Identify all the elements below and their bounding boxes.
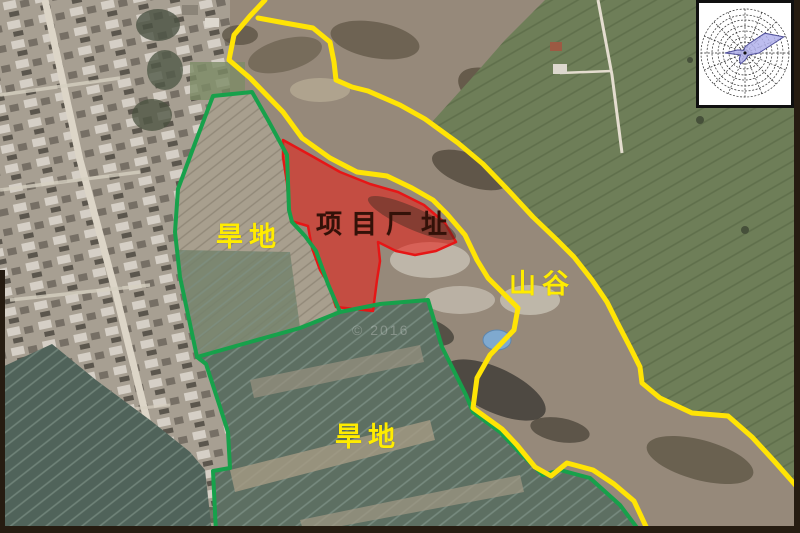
wind-rose-inset (696, 0, 794, 108)
farm-house (550, 42, 562, 51)
project-site-label: 项目厂址 (316, 204, 456, 241)
wind-rose-chart (699, 3, 791, 105)
satellite-map: 项目厂址 旱地 旱地 山谷 © 2016 (0, 0, 800, 533)
dryland-label-upper: 旱地 (216, 215, 282, 254)
wind-rose-center (743, 51, 746, 54)
valley-label: 山谷 (509, 262, 575, 301)
dryland-label-lower: 旱地 (335, 415, 401, 454)
imagery-watermark: © 2016 (352, 322, 409, 338)
